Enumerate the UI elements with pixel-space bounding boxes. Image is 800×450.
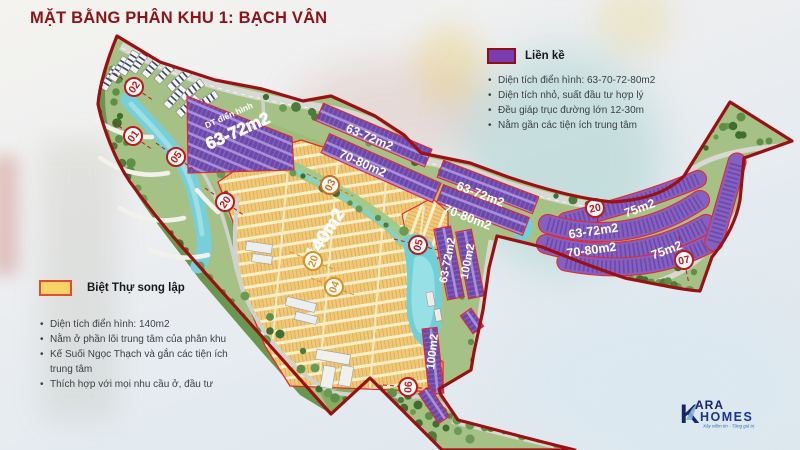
svg-text:Xây niềm tin - Tăng giá trị: Xây niềm tin - Tăng giá trị (702, 424, 755, 429)
svg-text:06: 06 (402, 381, 415, 394)
svg-text:HOMES: HOMES (700, 410, 753, 424)
